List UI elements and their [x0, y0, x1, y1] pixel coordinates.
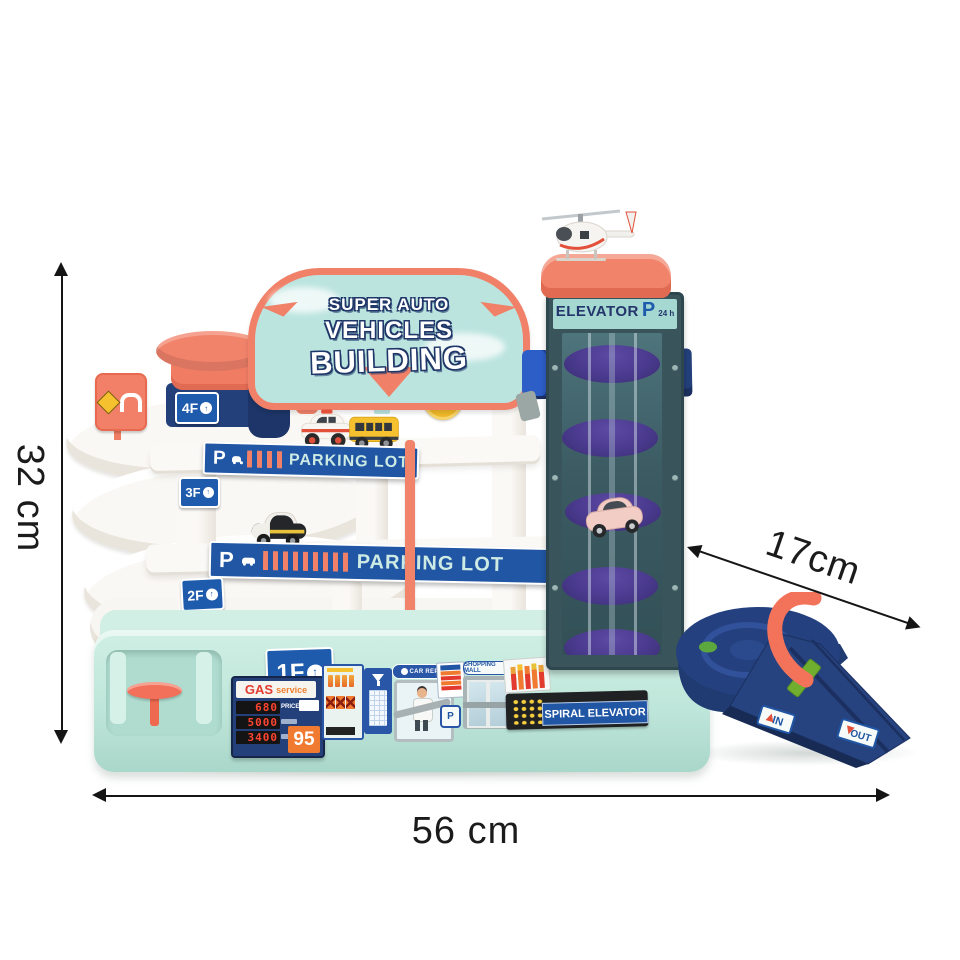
gas-label-2 — [281, 719, 297, 724]
mall-door — [463, 676, 510, 729]
height-dimension-line — [61, 274, 64, 732]
billboard-sign: SUPER AUTO VEHICLES BUILDING — [248, 268, 530, 410]
green-button — [699, 642, 717, 653]
parking-text: PARKING LOT — [356, 551, 504, 577]
up-arrow-icon: ↑ — [205, 588, 218, 601]
screw — [672, 585, 678, 591]
depth-dimension-label: 17cm — [745, 517, 882, 600]
heli-skid — [556, 258, 606, 261]
crank-knob — [127, 682, 182, 699]
gas-price-2: 5000 — [236, 716, 280, 729]
rotor-mast — [578, 214, 583, 222]
billboard-line3: BUILDING — [254, 338, 523, 383]
pump-x-row — [326, 694, 355, 710]
spiral-elevator-label: SPIRAL ELEVATOR — [542, 700, 649, 726]
dot-matrix — [512, 698, 545, 725]
elevator-banner-p: P — [642, 299, 655, 322]
gas-octane: 95 — [288, 726, 320, 753]
elevator-rail — [588, 333, 591, 655]
gas-logo-chip — [299, 700, 319, 711]
base-left-post — [196, 652, 212, 724]
up-arrow-icon: ↑ — [203, 487, 214, 498]
funnel-stem — [377, 681, 380, 686]
heli-window — [580, 231, 589, 239]
floor-label-4f: 4F↑ — [175, 392, 219, 424]
screw — [552, 585, 558, 591]
elevator-banner-title: ELEVATOR — [556, 303, 639, 320]
gas-header: GAS service — [236, 681, 316, 698]
gas-price-1-label: PRICE — [281, 704, 299, 710]
toy-pink-car — [581, 491, 646, 541]
spiral-elevator-strip: SPIRAL ELEVATOR — [506, 690, 649, 730]
keypad-panel — [364, 668, 392, 734]
x-mark-icon — [326, 696, 335, 709]
wrench-circle-icon — [401, 668, 408, 675]
gas-sign: GAS service 680 PRICE 5000 3400 95 — [231, 676, 325, 758]
keypad-grid — [369, 690, 387, 726]
door-bar — [463, 702, 510, 708]
u-turn-icon — [120, 393, 142, 412]
diamond-warning-icon — [96, 390, 120, 414]
billboard-line1: SUPER AUTO — [255, 295, 523, 315]
screw — [552, 475, 558, 481]
arrowhead-left — [92, 788, 106, 802]
uturn-sign — [95, 373, 147, 431]
parking-badge: P — [440, 705, 461, 728]
elevator-tower: ELEVATOR P 24 h — [546, 292, 684, 670]
car-icon — [232, 456, 242, 462]
mechanic-legs — [415, 720, 420, 731]
elevator-banner-hours: 24 h — [658, 309, 674, 318]
pillar-mid — [356, 468, 388, 546]
ambulance-stripe — [302, 429, 351, 432]
floor-label-3f: 3F↑ — [179, 477, 220, 508]
parking-p: P — [213, 447, 226, 469]
car-icon — [242, 557, 255, 563]
pump-panel-strip — [326, 727, 355, 735]
banner-bars — [263, 551, 349, 573]
gas-title: GAS — [245, 682, 273, 697]
arrowhead-right — [876, 788, 890, 802]
gas-subtitle: service — [276, 685, 307, 695]
screw — [672, 475, 678, 481]
elevator-banner: ELEVATOR P 24 h — [553, 299, 677, 329]
pump-bottles — [326, 674, 355, 688]
arrowhead-down — [54, 730, 68, 744]
parking-banner-top: P PARKING LOT — [203, 441, 420, 479]
floor-label-2f: 2F↑ — [180, 577, 225, 612]
base-left-post — [110, 652, 126, 724]
chart-sticker — [503, 656, 551, 693]
screw — [552, 365, 558, 371]
pump-panel-topbar — [327, 668, 353, 672]
arrowhead-left — [685, 540, 703, 558]
height-dimension-label: 32 cm — [10, 438, 50, 558]
parking-text: PARKING LOT — [289, 451, 409, 472]
width-dimension-line — [105, 795, 877, 798]
police-stripe — [270, 530, 304, 534]
gas-price-1: 680 — [236, 701, 280, 714]
elevator-glass — [562, 333, 662, 655]
floor-4f-text: 4F — [182, 400, 198, 416]
x-mark-icon — [336, 696, 345, 709]
tail-fin — [626, 212, 636, 233]
gas-price-3: 3400 — [236, 731, 280, 744]
up-arrow-icon: ↑ — [200, 402, 212, 414]
exit-ramp: IN OUT — [670, 592, 920, 768]
price-list-sticker — [436, 661, 466, 698]
banner-bars — [247, 450, 283, 468]
mechanic-head — [417, 688, 427, 698]
heli-cockpit — [556, 227, 572, 241]
screw — [672, 365, 678, 371]
ambulance-roof-bar — [321, 410, 332, 414]
width-dimension-label: 56 cm — [366, 810, 566, 853]
pump-panel — [322, 664, 364, 740]
parking-p: P — [219, 547, 234, 573]
x-mark-icon — [346, 696, 355, 709]
toy-helicopter — [540, 206, 650, 266]
